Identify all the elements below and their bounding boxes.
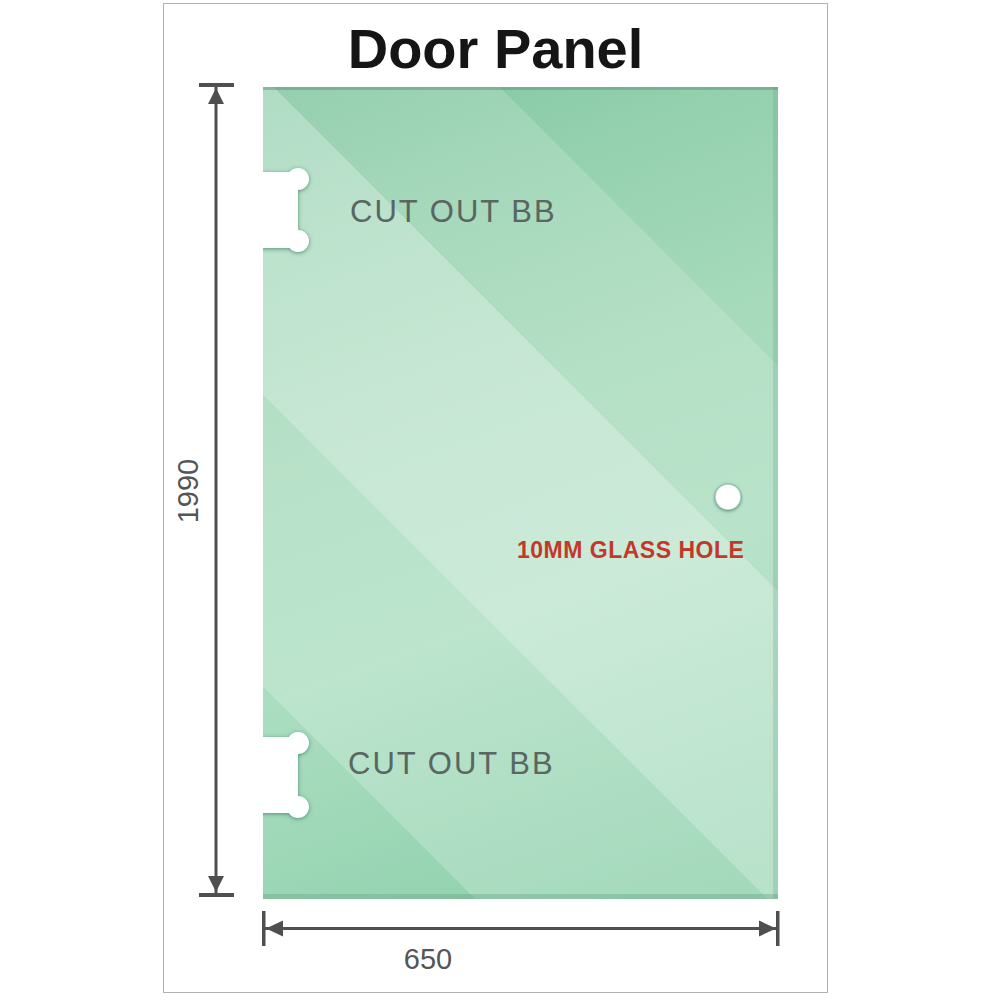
glass-hole-label: 10MM GLASS HOLE <box>517 537 744 564</box>
cutout-label-bottom: CUT OUT BB <box>348 746 555 782</box>
height-dimension-label: 1990 <box>170 431 206 551</box>
width-dimension-label: 650 <box>368 943 488 976</box>
diagram-title: Door Panel <box>163 16 828 81</box>
diagram-canvas: Door Panel <box>0 0 1000 1000</box>
cutout-label-top: CUT OUT BB <box>350 194 557 230</box>
